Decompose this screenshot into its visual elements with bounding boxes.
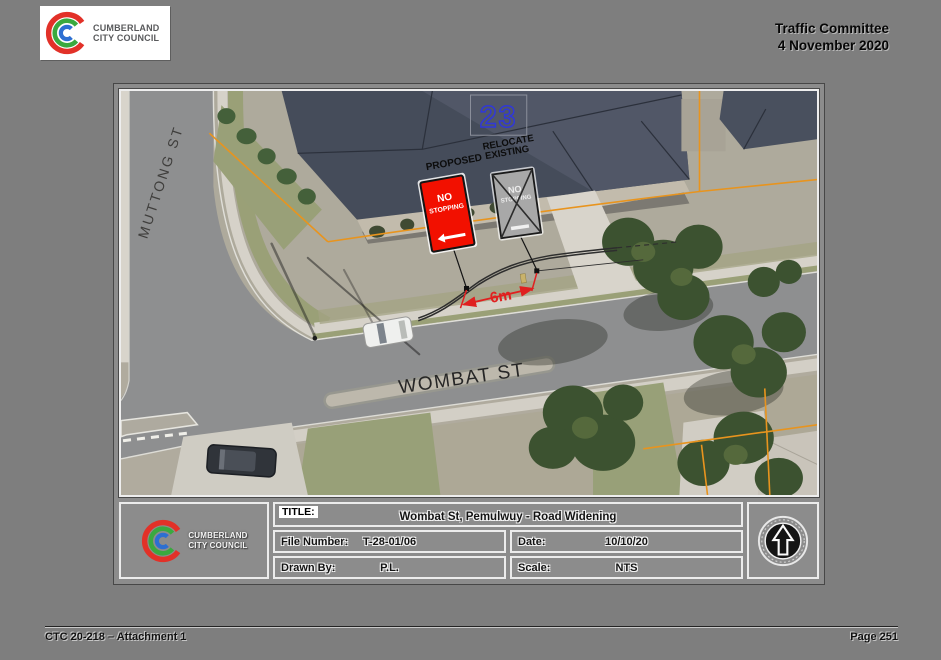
logo-text-line2: CITY COUNCIL [93, 33, 160, 44]
hydrant-marker [520, 274, 526, 284]
committee-name: Traffic Committee [775, 21, 889, 38]
drawn-by-cell: Drawn By: P.L. [273, 556, 506, 579]
aerial-basemap [121, 91, 817, 495]
north-arrow-icon [756, 514, 810, 568]
header-council-logo: CUMBERLAND CITY COUNCIL [40, 6, 170, 60]
drawing-frame: PROPOSED NO STOPPING RELOCATE EXISTING N [113, 83, 825, 585]
footer-divider [45, 626, 898, 628]
logo-text-line1: CUMBERLAND [188, 531, 247, 541]
title-block-logo: CUMBERLAND CITY COUNCIL [119, 502, 269, 579]
svg-text:23: 23 [480, 101, 518, 134]
title-block: CUMBERLAND CITY COUNCIL TITLE: Wombat St… [119, 502, 819, 579]
date-label: Date: [518, 536, 546, 548]
logo-text-line1: CUMBERLAND [93, 23, 160, 34]
scale-cell: Scale: NTS [510, 556, 743, 579]
car-dark [206, 444, 276, 477]
file-number-cell: File Number: T-28-01/06 [273, 530, 506, 553]
date-cell: Date: 10/10/20 [510, 530, 743, 553]
council-logo-icon [44, 10, 90, 56]
drawing-title: Wombat St, Pemulwuy - Road Widening [275, 511, 741, 523]
title-row: TITLE: Wombat St, Pemulwuy - Road Wideni… [273, 502, 743, 527]
meeting-date: 4 November 2020 [775, 38, 889, 55]
drawn-by-label: Drawn By: [281, 562, 335, 574]
council-logo-icon [140, 518, 186, 564]
file-number-label: File Number: [281, 536, 348, 548]
existing-no-stopping-sign: NO STOPPING [490, 166, 544, 241]
north-arrow-cell [747, 502, 819, 579]
header-meta: Traffic Committee 4 November 2020 [775, 21, 889, 54]
logo-text-line2: CITY COUNCIL [188, 541, 247, 551]
footer-page-number: Page 251 [850, 631, 898, 643]
scale-label: Scale: [518, 562, 550, 574]
footer-attachment-ref: CTC 20-218 – Attachment 1 [45, 631, 186, 643]
aerial-map: PROPOSED NO STOPPING RELOCATE EXISTING N [121, 91, 817, 495]
existing-sign-line1: NO [507, 184, 522, 196]
map-viewport: PROPOSED NO STOPPING RELOCATE EXISTING N [119, 89, 819, 497]
document-page: CUMBERLAND CITY COUNCIL Traffic Committe… [0, 0, 941, 660]
date-value: 10/10/20 [512, 536, 741, 548]
